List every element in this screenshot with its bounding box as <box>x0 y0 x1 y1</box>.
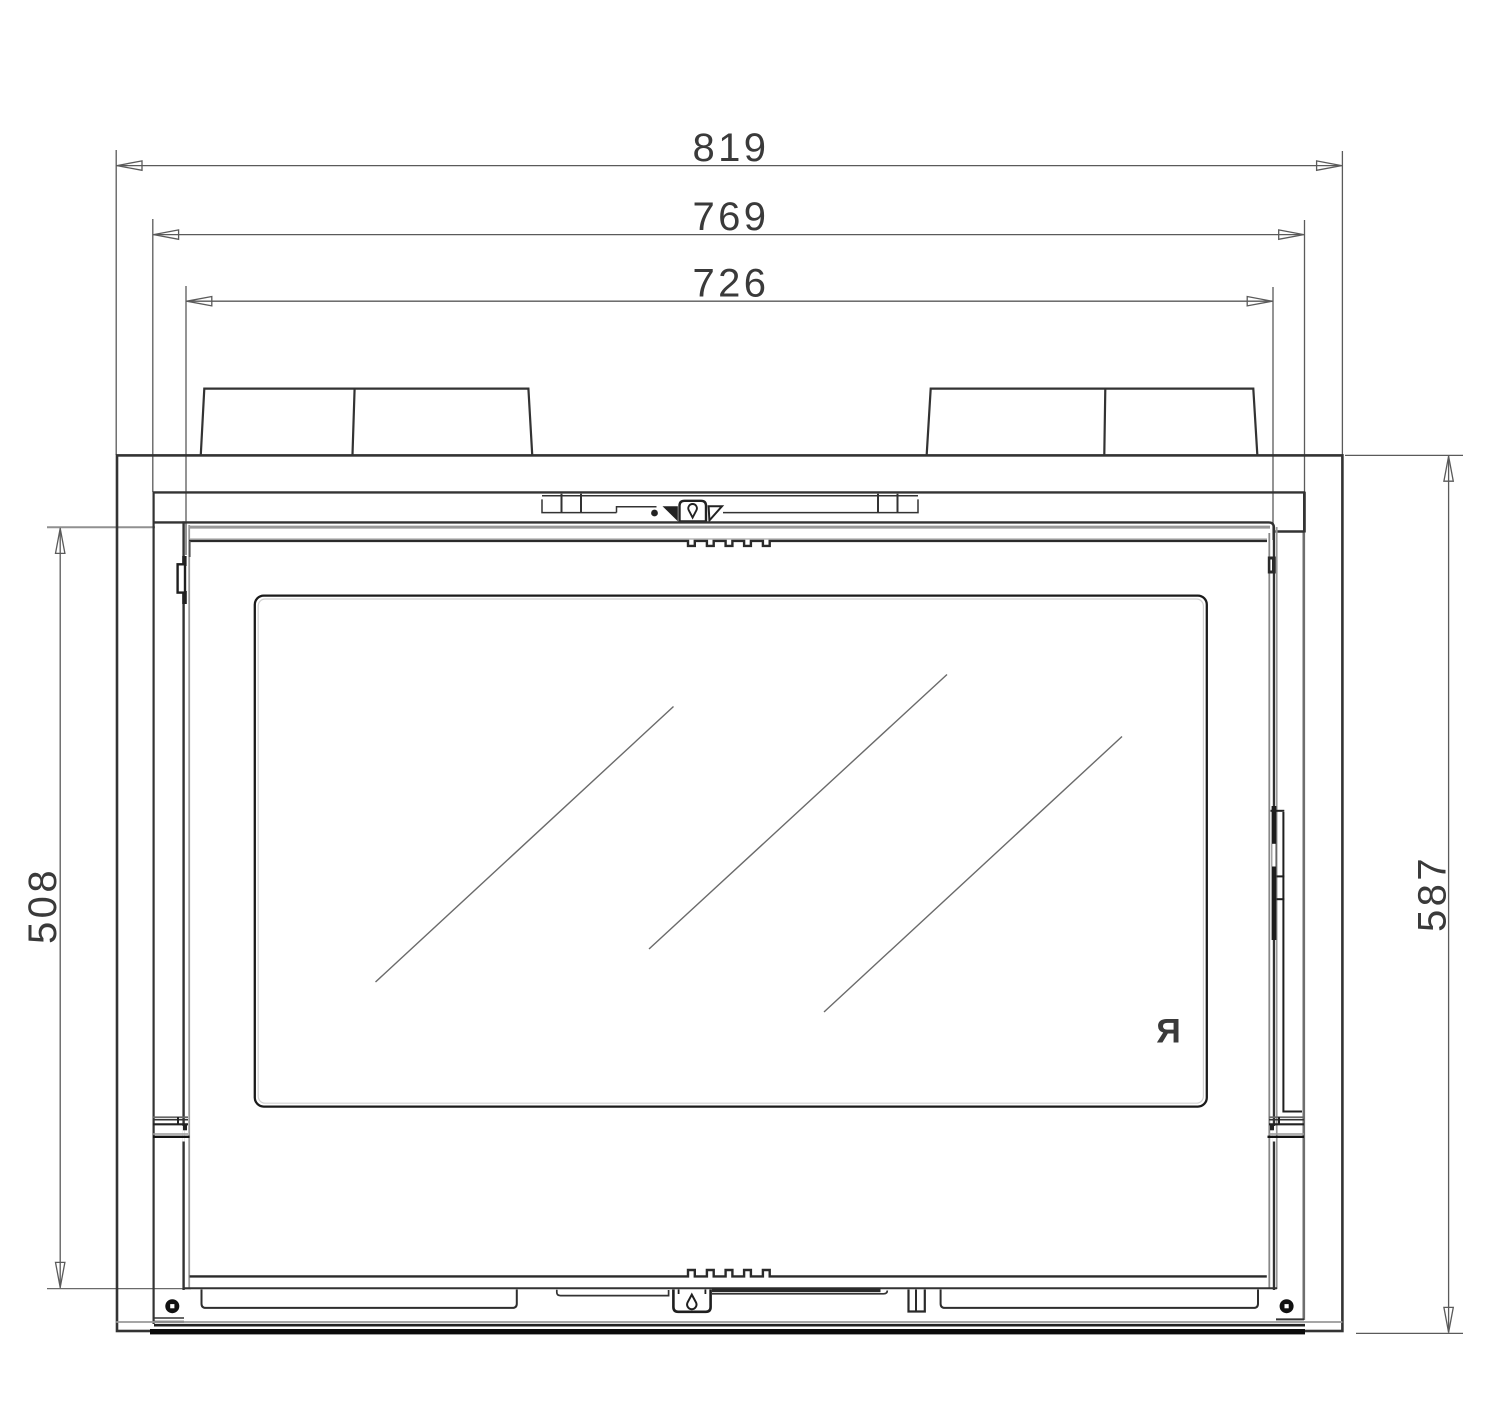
svg-text:819: 819 <box>693 126 770 170</box>
svg-text:508: 508 <box>21 867 65 944</box>
svg-text:769: 769 <box>693 195 770 239</box>
svg-text:587: 587 <box>1411 855 1455 932</box>
svg-text:726: 726 <box>693 262 770 306</box>
svg-text:R: R <box>1156 1012 1181 1050</box>
